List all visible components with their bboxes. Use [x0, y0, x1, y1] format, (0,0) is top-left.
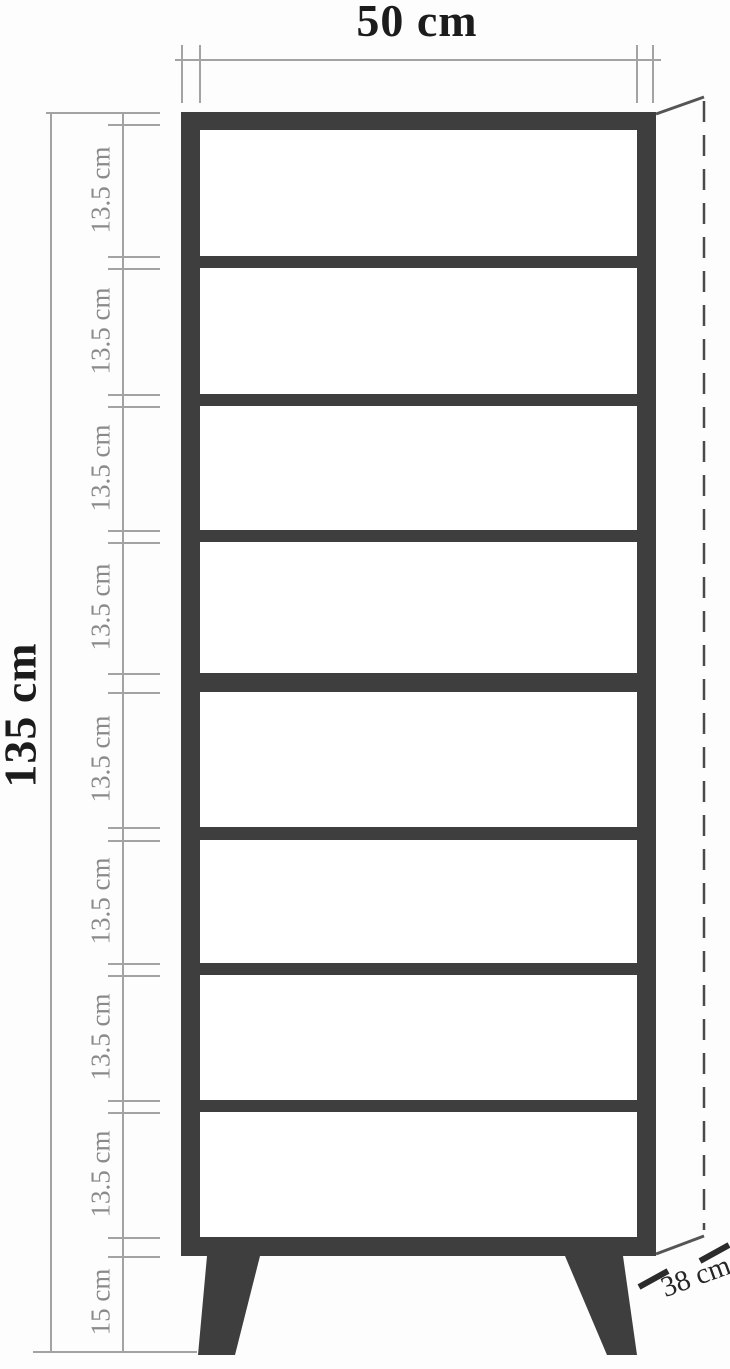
depth-label: 38 cm — [657, 1249, 730, 1305]
section-tick — [108, 673, 160, 675]
section-tick — [108, 963, 160, 965]
section-tick — [108, 394, 160, 396]
section-tick — [108, 1256, 160, 1258]
section-tick — [108, 1100, 160, 1102]
right-leg — [560, 1254, 642, 1356]
height-extension-tick-bottom — [33, 1351, 197, 1353]
section-tick — [108, 268, 160, 270]
shelf-divider-2 — [200, 394, 637, 406]
furniture-dimension-diagram: 50 cm 135 cm 13.5 cm 13.5 cm 13.5 cm 13.… — [0, 0, 730, 1369]
section-label-1: 13.5 cm — [86, 147, 117, 234]
shelf-divider-6 — [200, 963, 637, 975]
section-height-dimension-line — [122, 112, 124, 1352]
shelf-divider-4-thick — [200, 673, 637, 692]
section-tick — [108, 530, 160, 532]
width-extension-tick-inner-right — [636, 45, 638, 103]
section-tick — [108, 827, 160, 829]
leg-height-label: 15 cm — [86, 1269, 117, 1336]
depth-top-edge — [656, 97, 704, 114]
total-height-label: 135 cm — [0, 642, 47, 787]
section-tick — [108, 692, 160, 694]
width-extension-tick-outer-left — [181, 45, 183, 103]
section-tick — [108, 124, 160, 126]
shelf-divider-1 — [200, 256, 637, 268]
section-tick — [108, 840, 160, 842]
section-tick — [108, 1112, 160, 1114]
section-label-8: 13.5 cm — [86, 1131, 117, 1218]
height-extension-tick-top — [46, 112, 160, 114]
section-label-5: 13.5 cm — [86, 716, 117, 803]
section-tick — [108, 1237, 160, 1239]
depth-bottom-edge — [656, 1236, 704, 1254]
section-label-6: 13.5 cm — [86, 858, 117, 945]
section-label-3: 13.5 cm — [86, 425, 117, 512]
width-extension-tick-inner-left — [199, 45, 201, 103]
section-tick — [108, 406, 160, 408]
width-dimension-label: 50 cm — [317, 0, 517, 47]
section-tick — [108, 256, 160, 258]
section-tick — [108, 542, 160, 544]
section-label-2: 13.5 cm — [86, 288, 117, 375]
left-leg — [195, 1254, 265, 1356]
shelf-divider-7 — [200, 1100, 637, 1112]
section-label-7: 13.5 cm — [86, 994, 117, 1081]
width-dimension-line — [175, 59, 661, 61]
total-height-dimension-line — [50, 112, 52, 1352]
width-extension-tick-outer-right — [652, 45, 654, 103]
section-label-4: 13.5 cm — [86, 564, 117, 651]
shelf-divider-5 — [200, 827, 637, 840]
section-tick — [108, 975, 160, 977]
shelf-divider-3 — [200, 530, 637, 542]
